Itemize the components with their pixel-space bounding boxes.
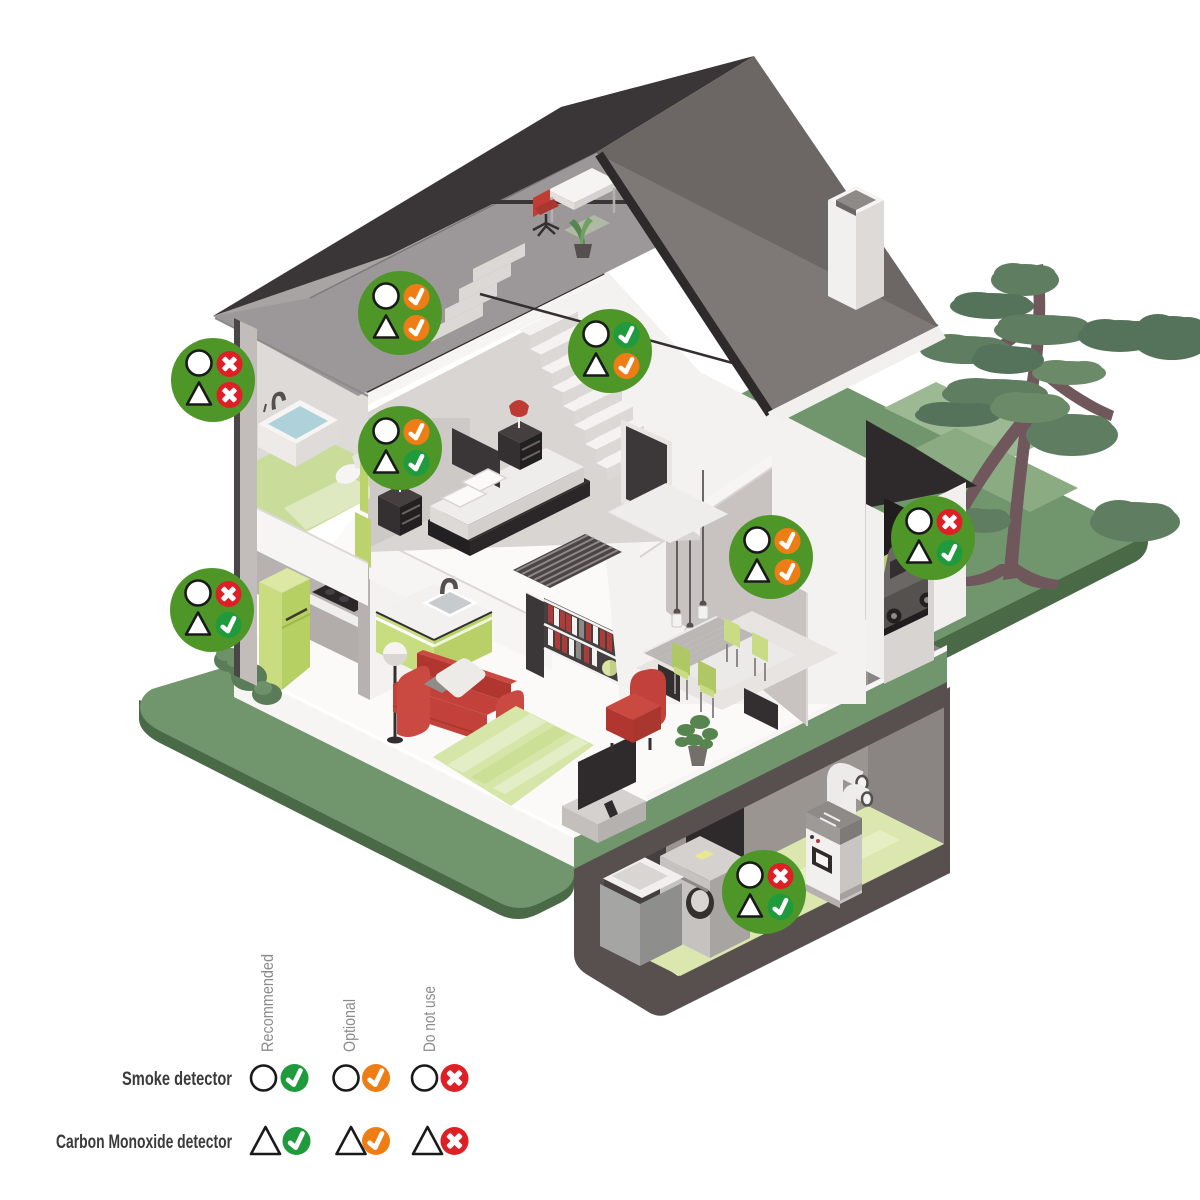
svg-text:Do not use: Do not use	[421, 986, 439, 1052]
svg-text:Carbon Monoxide detector: Carbon Monoxide detector	[56, 1132, 232, 1153]
svg-text:Smoke detector: Smoke detector	[122, 1069, 232, 1090]
svg-text:Optional: Optional	[341, 999, 359, 1052]
svg-text:Recommended: Recommended	[259, 954, 277, 1052]
